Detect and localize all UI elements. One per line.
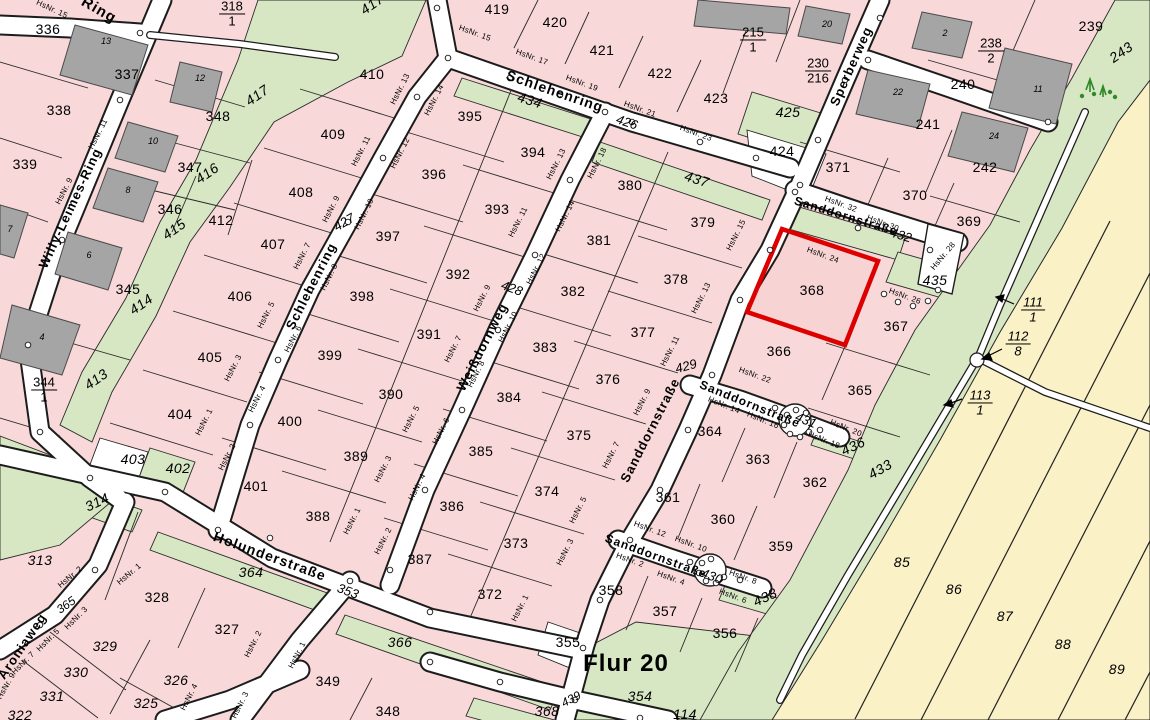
cadastral-map: RingWilly-Leimes-RingSchlehenring426Schl… [0,0,1150,720]
map-canvas[interactable] [0,0,1150,720]
